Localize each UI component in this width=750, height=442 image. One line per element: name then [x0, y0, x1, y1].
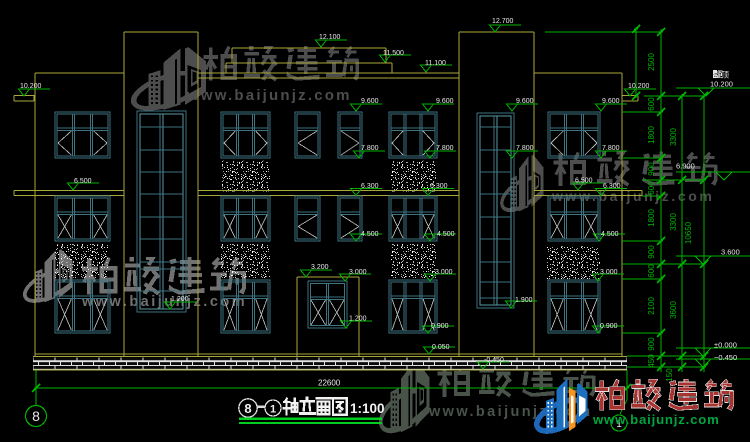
svg-text:3600: 3600	[669, 301, 678, 319]
svg-text:900: 900	[647, 337, 656, 351]
svg-text:9.600: 9.600	[516, 98, 534, 105]
svg-text:−0.450: −0.450	[714, 353, 737, 362]
svg-text:0.900: 0.900	[431, 323, 449, 330]
svg-text:10.200: 10.200	[20, 83, 42, 90]
svg-text:12.700: 12.700	[492, 18, 514, 25]
svg-text:11.500: 11.500	[383, 50, 404, 57]
svg-text:-0.450: -0.450	[484, 357, 504, 364]
svg-text:6.500: 6.500	[74, 178, 92, 185]
svg-text:10.200: 10.200	[628, 83, 650, 90]
svg-text:6.500: 6.500	[575, 178, 593, 185]
svg-text:900: 900	[647, 245, 656, 259]
svg-text:4.500: 4.500	[437, 231, 455, 238]
svg-text:6.300: 6.300	[430, 183, 448, 190]
svg-text:600: 600	[647, 97, 656, 111]
svg-text:1.900: 1.900	[515, 297, 533, 304]
svg-text:1:100: 1:100	[350, 401, 385, 416]
svg-text:9.600: 9.600	[361, 98, 379, 105]
svg-text:600: 600	[647, 264, 656, 278]
svg-text:3.000: 3.000	[600, 269, 618, 276]
svg-text:3.000: 3.000	[349, 269, 367, 276]
svg-text:3300: 3300	[669, 213, 678, 231]
svg-text:600: 600	[647, 181, 656, 195]
svg-text:6.300: 6.300	[361, 183, 379, 190]
svg-text:10650: 10650	[684, 221, 693, 244]
svg-text:3.000: 3.000	[435, 269, 453, 276]
svg-text:1800: 1800	[647, 126, 656, 144]
svg-text:1.200: 1.200	[349, 316, 367, 323]
svg-text:7.800: 7.800	[602, 145, 620, 152]
svg-text:11.100: 11.100	[425, 60, 446, 67]
svg-text:8: 8	[32, 408, 40, 424]
svg-text:1: 1	[270, 404, 276, 416]
svg-text:22600: 22600	[318, 379, 341, 388]
svg-text:www.baijunjz.com: www.baijunjz.com	[592, 412, 720, 427]
svg-text:2500: 2500	[647, 53, 656, 71]
svg-text:7.800: 7.800	[436, 145, 454, 152]
svg-text:2100: 2100	[647, 297, 656, 315]
svg-text:0.050: 0.050	[432, 344, 450, 351]
svg-text:900: 900	[647, 162, 656, 176]
svg-text:150: 150	[665, 368, 674, 382]
svg-text:7.800: 7.800	[516, 145, 534, 152]
svg-text:www.baijunjz.com: www.baijunjz.com	[186, 87, 352, 104]
svg-text:3.200: 3.200	[311, 264, 329, 271]
svg-text:9.600: 9.600	[436, 98, 454, 105]
svg-text:9.600: 9.600	[602, 98, 620, 105]
svg-text:6.900: 6.900	[676, 162, 695, 171]
svg-text:12.100: 12.100	[319, 34, 341, 41]
svg-text:7.800: 7.800	[361, 145, 379, 152]
svg-text:4.500: 4.500	[361, 231, 379, 238]
svg-text:8: 8	[244, 401, 251, 416]
svg-text:3.600: 3.600	[721, 248, 740, 257]
svg-text:www.baijunjz.com: www.baijunjz.com	[428, 404, 593, 420]
svg-text:450: 450	[647, 354, 656, 368]
svg-text:±0.000: ±0.000	[714, 341, 737, 350]
svg-text:1800: 1800	[647, 209, 656, 227]
svg-text:10.200: 10.200	[710, 80, 733, 89]
svg-text:4.500: 4.500	[601, 231, 619, 238]
svg-text:0.900: 0.900	[600, 323, 618, 330]
svg-text:1.200: 1.200	[171, 296, 189, 303]
svg-text:6.300: 6.300	[603, 183, 621, 190]
svg-text:3300: 3300	[669, 128, 678, 146]
